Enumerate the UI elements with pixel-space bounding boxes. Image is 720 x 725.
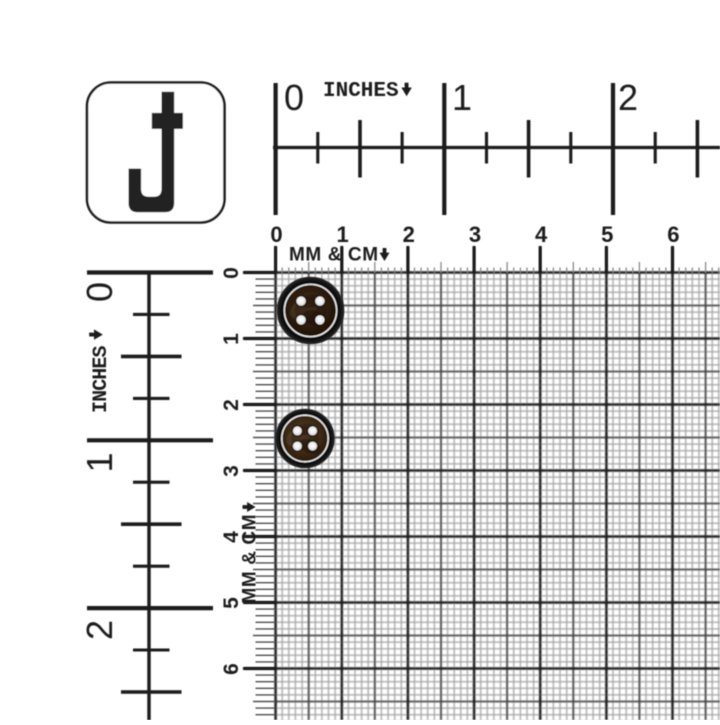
svg-text:0: 0 — [220, 267, 243, 279]
svg-text:5: 5 — [601, 222, 613, 247]
svg-text:MM & CM: MM & CM — [240, 514, 261, 604]
svg-text:3: 3 — [220, 465, 243, 477]
svg-text:1: 1 — [336, 222, 348, 247]
svg-text:0: 0 — [79, 282, 120, 302]
svg-text:INCHES: INCHES — [90, 345, 113, 413]
svg-text:1: 1 — [220, 333, 243, 345]
svg-text:2: 2 — [220, 399, 243, 411]
svg-text:0: 0 — [270, 222, 282, 247]
svg-text:1: 1 — [452, 77, 472, 118]
svg-text:3: 3 — [469, 222, 481, 247]
svg-text:6: 6 — [220, 663, 243, 675]
svg-text:6: 6 — [667, 222, 679, 247]
svg-text:2: 2 — [403, 222, 415, 247]
svg-text:1: 1 — [79, 452, 120, 472]
svg-text:4: 4 — [535, 222, 548, 247]
svg-text:2: 2 — [79, 620, 120, 640]
svg-text:0: 0 — [284, 77, 304, 118]
svg-text:MM & CM: MM & CM — [289, 245, 379, 266]
svg-text:2: 2 — [618, 77, 638, 118]
svg-text:INCHES: INCHES — [323, 80, 399, 103]
